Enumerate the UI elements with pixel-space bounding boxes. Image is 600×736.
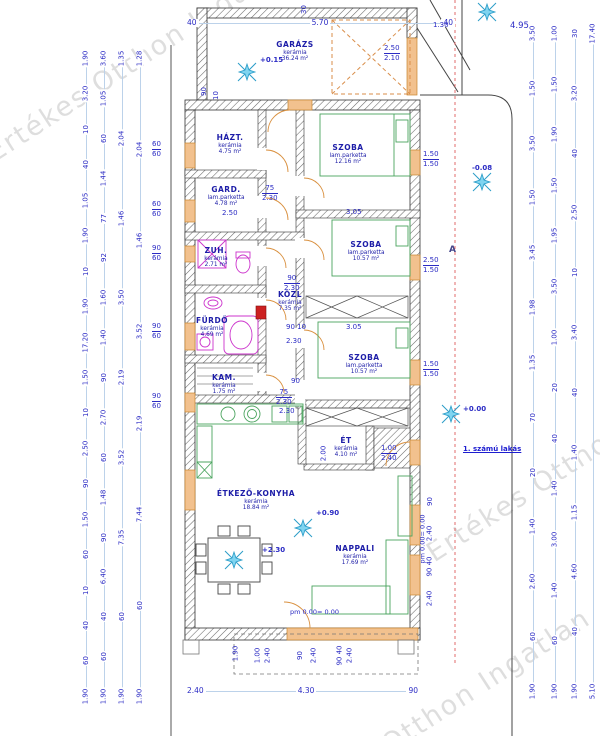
dim-chain-right-2: 1.001.501.901.501.953.501.0020401.403.00… <box>549 30 561 695</box>
dim-kozl-b: 2.30 <box>286 338 302 345</box>
opening-size-right-3: 1.501.50 <box>423 360 439 379</box>
opening-size-left-1: 6060 <box>152 140 161 159</box>
dim-szoba3-width: 3.05 <box>346 324 362 331</box>
opening-size-left-4: 9060 <box>152 322 161 341</box>
room-label-et: ÉTkerámia4.10 m² <box>334 437 357 459</box>
room-label-szoba-2: SZOBAlam.parketta10.57 m² <box>347 241 384 263</box>
door-size-1: 752.30 <box>262 184 278 203</box>
dim-terrace-e: 2.40 <box>310 648 317 664</box>
dim-top-right-1: 1.30 <box>433 22 449 29</box>
dim-et-width: 2.00 <box>320 446 327 462</box>
opening-size-right-1: 1.501.50 <box>423 150 439 169</box>
level-marker-nappali: +0.90 <box>316 509 339 517</box>
opening-size-left-3: 9060 <box>152 244 161 263</box>
opening-size-left-2: 6060 <box>152 200 161 219</box>
dim-chain-left-1: 1.903.2010401.051.90101.9017.201.50102.5… <box>80 55 92 700</box>
dim-kozl-a: 90 10 <box>286 324 306 331</box>
opening-size-garage-door: 2.502.10 <box>384 44 400 63</box>
dim-kam-a: 90 <box>291 378 300 385</box>
dim-misc: 10 <box>213 91 220 100</box>
room-label-zuh: ZUH.kerámia2.71 m² <box>204 247 227 269</box>
door-size-entry: 1.002.40 <box>381 444 397 463</box>
apartment-note: 1. számú lakás <box>463 445 521 453</box>
room-label-hazt: HÁZT.kerámia4.75 m² <box>217 134 244 156</box>
dim-terrace-c: 2.40 <box>264 648 271 664</box>
room-label-etkezo-konyha: ÉTKEZŐ-KONYHAkerámia18.84 m² <box>217 490 295 512</box>
room-label-gard: GARD.lam.parketta4.78 m² <box>207 186 244 208</box>
level-marker-boundary: +0.00 <box>463 405 486 413</box>
door-size-2: 902.30 <box>284 274 300 293</box>
opening-size-left-5: 9060 <box>152 392 161 411</box>
room-label-kozl: KÖZLkerámia7.35 m² <box>278 291 302 313</box>
dim-chain-right-4: 17.405.10 <box>587 30 599 695</box>
dim-chain-right-1: 3.501.503.501.503.451.981.3570201.402.60… <box>527 30 539 695</box>
dim-terrace-d: 90 <box>297 651 304 660</box>
dim-kam-b: 2.30 <box>279 408 295 415</box>
dim-row-bottom: 2.404.3090 <box>185 686 420 696</box>
dim-top-vert: 30 <box>301 5 308 14</box>
dim-chain-right-wall: 902.4090 402.40 <box>424 498 436 602</box>
opening-size-right-2: 2.501.50 <box>423 256 439 275</box>
room-label-szoba-3: SZOBAlam.parketta10.57 m² <box>345 354 382 376</box>
dim-chain-right-3: 303.20402.50103.40401.401.154.60401.90 <box>569 30 581 695</box>
dim-chain-left-3: 1.352.041.463.502.193.527.35601.90 <box>116 55 128 700</box>
level-marker-right: -0.08 <box>472 164 492 172</box>
dim-szoba2-width: 3.05 <box>346 209 362 216</box>
dim-row-top: 405.7040 <box>185 18 455 28</box>
dim-terrace-b: 1.00 <box>254 648 261 664</box>
room-label-furdo: FÜRDŐkerámia4.69 m² <box>196 317 228 339</box>
floor-zero-note: pm 0.00= 0.00 <box>290 608 339 616</box>
level-marker-garage: +0.15 <box>260 56 283 64</box>
floor-plan-canvas: Értékes Otthon Ingatlan Értékes Otthon I… <box>0 0 600 736</box>
dim-terrace-a: 1.90 <box>232 646 239 662</box>
room-label-szoba-1: SZOBAlam.parketta12.16 m² <box>329 144 366 166</box>
dim-chain-left-2: 3.601.05601.4477921.601.40902.70601.4890… <box>98 55 110 700</box>
room-label-kam: KAM.kerámia1.75 m² <box>212 374 236 396</box>
door-size-3: 752.30 <box>276 388 292 407</box>
dim-chain-left-4: 1.282.041.463.522.197.44601.90 <box>134 55 146 700</box>
dim-gard-width: 2.50 <box>222 210 238 217</box>
dim-misc: 90 <box>201 87 208 96</box>
section-marker-a: A <box>449 245 456 255</box>
level-marker-dining: +2.30 <box>262 546 285 554</box>
dim-terrace-f: 90 40 <box>337 645 344 665</box>
dim-terrace-g: 2.40 <box>346 648 353 664</box>
room-label-nappali: NAPPALIkerámia17.69 m² <box>335 545 374 567</box>
chimney-marker <box>256 306 266 319</box>
